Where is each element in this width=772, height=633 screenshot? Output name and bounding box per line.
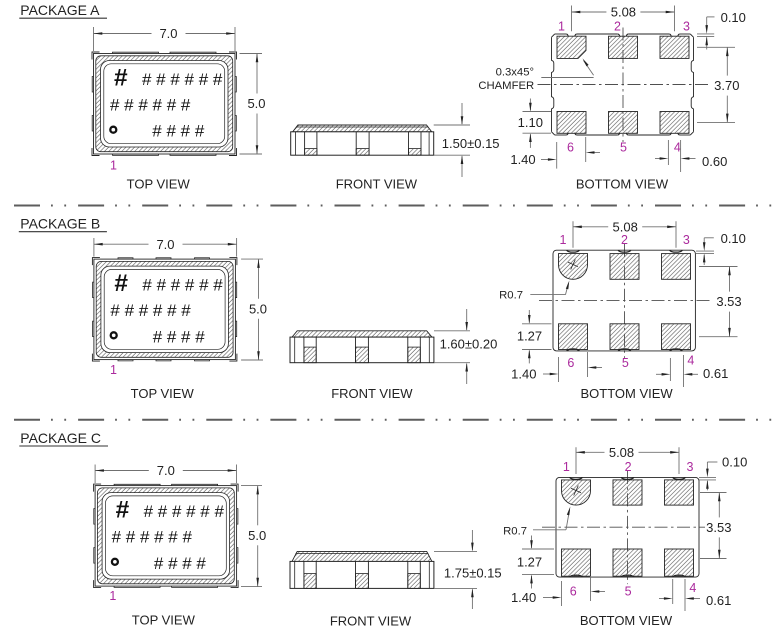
- svg-text:7.0: 7.0: [156, 237, 174, 252]
- svg-text:1.75±0.15: 1.75±0.15: [444, 565, 502, 580]
- svg-text:3.53: 3.53: [706, 520, 731, 535]
- svg-text:# # # #: # # # #: [154, 554, 207, 573]
- svg-text:2: 2: [621, 233, 628, 247]
- svg-text:1: 1: [563, 460, 570, 474]
- svg-text:1.27: 1.27: [517, 329, 542, 344]
- svg-text:1.50±0.15: 1.50±0.15: [442, 136, 500, 151]
- svg-text:BOTTOM VIEW: BOTTOM VIEW: [576, 177, 669, 192]
- svg-text:0.61: 0.61: [706, 593, 731, 608]
- svg-text:2: 2: [625, 460, 632, 474]
- svg-text:0.60: 0.60: [702, 154, 727, 169]
- svg-text:1: 1: [560, 233, 567, 247]
- svg-text:0.3x45°: 0.3x45°: [496, 67, 534, 79]
- svg-text:1.27: 1.27: [517, 555, 542, 570]
- svg-text:# # # # # #: # # # # # #: [142, 276, 223, 295]
- svg-text:#: #: [114, 270, 128, 297]
- svg-text:0.10: 0.10: [721, 231, 746, 246]
- svg-text:5.08: 5.08: [611, 5, 636, 20]
- svg-text:1: 1: [109, 589, 116, 603]
- svg-text:6: 6: [567, 141, 574, 155]
- svg-text:# # # # # #: # # # # # #: [110, 95, 191, 114]
- svg-text:4: 4: [674, 141, 681, 155]
- svg-text:5: 5: [625, 585, 632, 599]
- svg-text:BOTTOM VIEW: BOTTOM VIEW: [580, 386, 673, 401]
- svg-text:FRONT VIEW: FRONT VIEW: [336, 177, 418, 192]
- svg-text:# # # # # #: # # # # # #: [142, 70, 223, 89]
- svg-text:7.0: 7.0: [159, 26, 177, 41]
- svg-text:R0.7: R0.7: [499, 290, 523, 302]
- svg-text:1: 1: [558, 20, 565, 34]
- svg-text:6: 6: [570, 585, 577, 599]
- svg-text:3: 3: [683, 233, 690, 247]
- svg-text:#: #: [114, 64, 128, 91]
- svg-text:0.10: 0.10: [721, 10, 746, 25]
- svg-text:4: 4: [687, 354, 694, 368]
- svg-text:1.40: 1.40: [510, 152, 535, 167]
- svg-text:# # # # # #: # # # # # #: [144, 502, 225, 521]
- svg-text:# # # #: # # # #: [152, 122, 205, 141]
- svg-text:2: 2: [614, 20, 621, 34]
- svg-text:PACKAGE C: PACKAGE C: [20, 430, 101, 446]
- svg-text:PACKAGE B: PACKAGE B: [20, 216, 100, 232]
- svg-text:5.0: 5.0: [249, 301, 267, 316]
- svg-text:0.61: 0.61: [703, 366, 728, 381]
- svg-text:CHAMFER: CHAMFER: [478, 80, 534, 92]
- svg-text:1: 1: [110, 363, 117, 377]
- svg-text:# # # # # #: # # # # # #: [112, 528, 193, 547]
- svg-text:PACKAGE A: PACKAGE A: [20, 2, 100, 18]
- svg-text:TOP VIEW: TOP VIEW: [132, 612, 196, 627]
- svg-text:3: 3: [687, 460, 694, 474]
- svg-text:5: 5: [620, 141, 627, 155]
- svg-text:4: 4: [689, 581, 696, 595]
- svg-text:3.70: 3.70: [714, 78, 739, 93]
- svg-text:5.0: 5.0: [248, 528, 266, 543]
- svg-text:1.40: 1.40: [511, 590, 536, 605]
- svg-text:0.10: 0.10: [722, 455, 747, 470]
- svg-text:TOP VIEW: TOP VIEW: [131, 386, 195, 401]
- svg-text:3: 3: [683, 20, 690, 34]
- svg-text:3.53: 3.53: [716, 294, 741, 309]
- svg-text:7.0: 7.0: [157, 463, 175, 478]
- svg-text:TOP VIEW: TOP VIEW: [127, 177, 191, 192]
- svg-text:6: 6: [567, 356, 574, 370]
- svg-text:1.10: 1.10: [518, 115, 543, 130]
- svg-text:5.08: 5.08: [613, 219, 638, 234]
- svg-text:R0.7: R0.7: [503, 526, 527, 538]
- svg-text:# # # # # #: # # # # # #: [110, 301, 191, 320]
- svg-text:FRONT VIEW: FRONT VIEW: [331, 386, 413, 401]
- svg-text:1: 1: [110, 159, 117, 173]
- svg-text:FRONT VIEW: FRONT VIEW: [330, 613, 412, 628]
- svg-text:1.60±0.20: 1.60±0.20: [440, 337, 498, 352]
- svg-text:1.40: 1.40: [511, 367, 536, 382]
- svg-text:#: #: [116, 496, 130, 523]
- svg-text:BOTTOM VIEW: BOTTOM VIEW: [580, 613, 673, 628]
- svg-text:5.08: 5.08: [609, 445, 634, 460]
- svg-text:5: 5: [622, 356, 629, 370]
- svg-text:5.0: 5.0: [247, 96, 265, 111]
- svg-text:# # # #: # # # #: [153, 327, 206, 346]
